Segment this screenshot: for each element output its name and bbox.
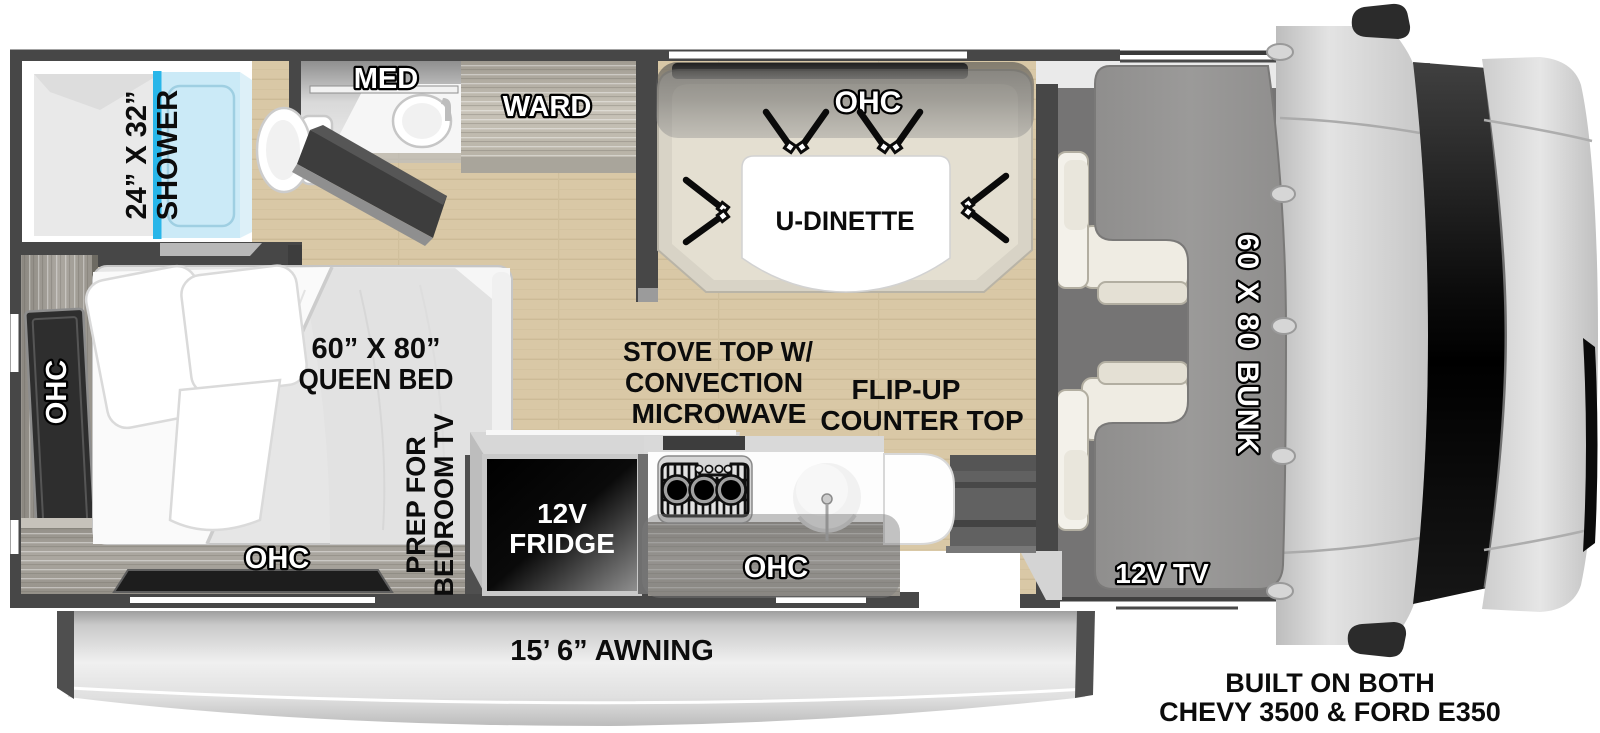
svg-text:QUEEN BED: QUEEN BED bbox=[299, 364, 454, 396]
svg-text:PREP FOR: PREP FOR bbox=[401, 436, 431, 574]
svg-text:OHC: OHC bbox=[245, 543, 310, 575]
svg-text:STOVE TOP W/: STOVE TOP W/ bbox=[623, 336, 813, 367]
svg-text:OHC: OHC bbox=[41, 360, 73, 425]
svg-text:12V: 12V bbox=[537, 498, 587, 529]
svg-text:15’ 6” AWNING: 15’ 6” AWNING bbox=[510, 635, 714, 667]
svg-text:CONVECTION: CONVECTION bbox=[625, 367, 803, 398]
svg-text:FLIP-UP: FLIP-UP bbox=[852, 374, 961, 405]
svg-text:CHEVY 3500 & FORD E350: CHEVY 3500 & FORD E350 bbox=[1159, 697, 1501, 727]
svg-text:60” X 80”: 60” X 80” bbox=[312, 333, 441, 365]
svg-text:24” X 32”: 24” X 32” bbox=[121, 91, 153, 220]
svg-text:BUILT ON BOTH: BUILT ON BOTH bbox=[1225, 668, 1434, 698]
svg-text:U-DINETTE: U-DINETTE bbox=[776, 206, 915, 236]
svg-text:MICROWAVE: MICROWAVE bbox=[632, 398, 807, 429]
svg-text:OHC: OHC bbox=[835, 86, 902, 119]
svg-text:BEDROOM TV: BEDROOM TV bbox=[429, 413, 459, 596]
svg-text:60 X 80 BUNK: 60 X 80 BUNK bbox=[1231, 234, 1264, 456]
svg-text:FRIDGE: FRIDGE bbox=[509, 528, 615, 559]
svg-text:WARD: WARD bbox=[503, 91, 592, 123]
svg-text:12V TV: 12V TV bbox=[1115, 558, 1209, 589]
svg-text:MED: MED bbox=[354, 63, 418, 95]
svg-text:OHC: OHC bbox=[744, 552, 809, 584]
svg-text:SHOWER: SHOWER bbox=[152, 90, 184, 221]
svg-text:COUNTER TOP: COUNTER TOP bbox=[820, 405, 1023, 436]
